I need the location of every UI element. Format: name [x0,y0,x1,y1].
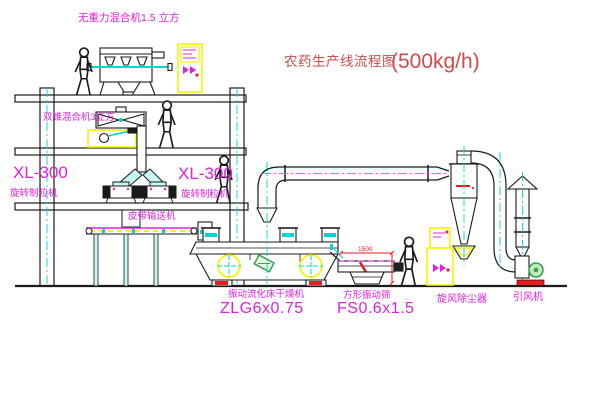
page-title: 农药生产线流程图 [284,54,396,69]
label-cyclone: 旋风除尘器 [437,292,487,305]
label-granulator-model-right: XL-300 [178,164,233,183]
label-screen-model: FS0.6x1.5 [337,300,414,317]
dim-screen-length: 1500 [358,246,373,253]
control-cabinet-right [427,228,453,285]
label-granulator-name-right: 旋转制粒机 [181,188,229,200]
worker-figure-mid [158,101,175,148]
floor-slab-mid [15,148,246,155]
control-cabinet-top [178,44,202,92]
label-fan: 引风机 [513,290,543,303]
granulator-left [103,182,139,203]
page-title-capacity: (500kg/h) [391,50,480,73]
exhaust-duct [258,165,449,208]
granulator-right [140,182,176,203]
fluid-bed-dryer [190,208,340,286]
label-granulator-model-left: XL-300 [13,163,68,182]
induced-draft-fan [515,256,544,286]
label-dryer-model: ZLG6x0.75 [220,300,304,317]
label-granulator-name-left: 旋转制粒机 [10,187,58,199]
floor-slab-low [15,203,248,210]
diagram-drawing: 无重力混合机1.5 立方 农药生产线流程图 (500kg/h) 双锥混合机3立方… [0,0,600,403]
label-gravity-mixer: 无重力混合机1.5 立方 [78,11,180,24]
floor-slab-top [15,95,246,102]
gravity-free-mixer [87,48,172,95]
label-cone-mixer: 双锥混合机3立方 [43,111,115,123]
worker-figure-screen [400,237,418,286]
worker-figure-top [75,48,92,95]
label-belt-conveyor: 皮带输送机 [128,210,176,222]
process-flow-diagram: 无重力混合机1.5 立方 农药生产线流程图 (500kg/h) 双锥混合机3立方… [0,0,600,403]
label-dryer-name: 振动流化床干燥机 [228,288,305,300]
